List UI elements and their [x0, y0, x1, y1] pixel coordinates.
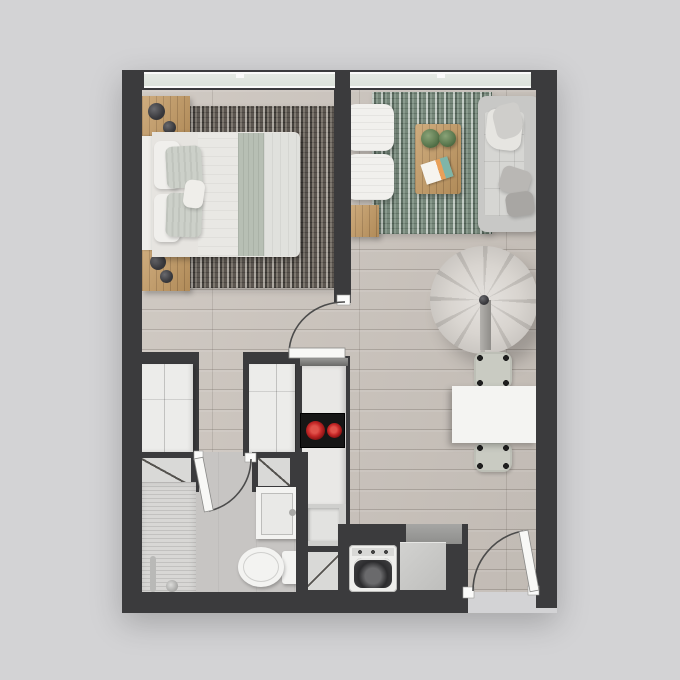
door-jamb-cap: [337, 295, 350, 305]
bathroom-door-leaf: [194, 457, 213, 512]
entry-door-arc: [473, 531, 523, 591]
bathroom-door-arc: [209, 459, 251, 511]
floor-plan-canvas: [0, 0, 680, 680]
bedroom-door-arc: [289, 302, 345, 353]
entry-door-leaf: [519, 530, 539, 592]
door-swings-overlay: [0, 0, 680, 680]
bedroom-door-leaf: [289, 348, 345, 358]
